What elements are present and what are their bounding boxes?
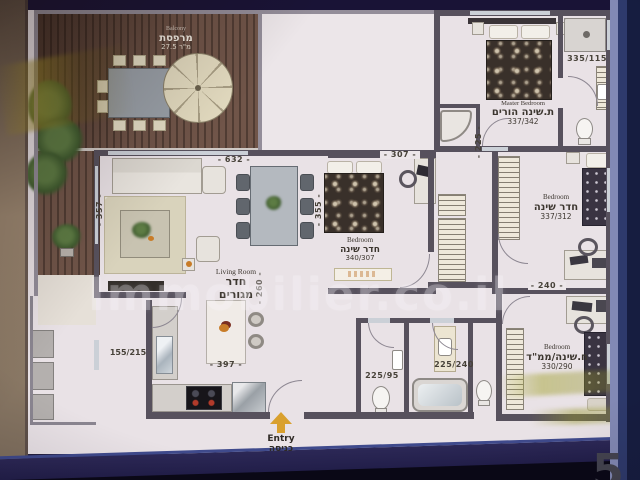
page-edge-stripe <box>618 0 627 480</box>
watermark: Immobilier.co.il <box>88 268 509 321</box>
page-number: 5 <box>592 444 624 480</box>
service-dims: 155/215 <box>106 349 150 358</box>
bedroom-mid-en: Bedroom <box>332 237 388 245</box>
dim-632: - 632 - <box>206 156 262 164</box>
ac-unit <box>30 330 54 358</box>
wall-master-bottom <box>434 146 612 152</box>
bed-pillow <box>489 25 518 39</box>
toilet-tank <box>478 400 490 406</box>
balcony-name-en: Balcony <box>140 26 212 33</box>
umbrella-pole <box>195 85 201 91</box>
sink <box>392 350 403 370</box>
outdoor-chair <box>153 120 166 131</box>
wall-ensuite-left <box>558 12 563 78</box>
desk-chair <box>399 170 417 188</box>
toilet <box>476 380 492 402</box>
window-master-top <box>470 11 550 15</box>
shower-head <box>583 31 590 38</box>
service-balcony-label: 155/215 <box>106 349 150 358</box>
armchair <box>196 236 220 262</box>
bedroom-right-dims: 337/312 <box>528 213 584 221</box>
bathtub-basin <box>418 384 462 406</box>
balcony-area: מ"ר 27.5 <box>140 44 212 52</box>
mamad-en: Bedroom <box>526 344 588 352</box>
dim-397: - 397 - <box>204 361 248 369</box>
wardrobe <box>498 156 520 240</box>
outdoor-chair <box>113 120 126 131</box>
nightstand <box>472 22 484 35</box>
bar-stool <box>248 334 264 349</box>
mamad-label: Bedroom ח.שינה/ממ"ד 330/290 <box>526 344 588 371</box>
wall-tubroom-top <box>436 104 480 108</box>
bedroom-mid-label: Bedroom חדר שינה 340/307 <box>332 237 388 263</box>
entry-en: Entry <box>252 434 310 444</box>
door-gap-master <box>482 147 508 151</box>
dining-chair <box>300 198 314 215</box>
dishwasher <box>232 382 266 414</box>
fruit-bowl <box>219 324 229 332</box>
vine-plant <box>26 152 68 196</box>
upper-terrace <box>262 14 434 150</box>
ac-unit <box>30 362 54 390</box>
wall-ensuite-left2 <box>558 108 563 152</box>
plant-pot <box>60 248 74 257</box>
dim-357: - 357 - <box>96 186 104 234</box>
entry-he: כניסה <box>252 444 310 454</box>
wardrobe <box>506 328 524 410</box>
toilet <box>372 386 390 410</box>
computer <box>572 301 593 312</box>
entry-arrow-stem <box>277 424 285 433</box>
wall-master-left <box>434 12 440 152</box>
outdoor-chair <box>133 120 146 131</box>
wall-entry-right <box>304 412 360 419</box>
page-edge-stripe <box>610 0 618 480</box>
dining-chair <box>236 174 250 191</box>
bed-pillow <box>521 25 550 39</box>
master-dims: 337/342 <box>490 118 556 126</box>
wall-bath-left <box>404 322 409 417</box>
wall-kitchen-bottom <box>146 412 270 419</box>
floor-plan-photo: Balcony מרפסת מ"ר 27.5 - 632 - Living Ro… <box>0 0 640 480</box>
toilet-tank <box>578 138 591 145</box>
bed-double <box>324 173 384 233</box>
balcony-rail-bottom <box>30 422 96 425</box>
dining-chair <box>236 198 250 215</box>
dim-225: - 225 - <box>475 121 483 163</box>
wc-dims: 225/95 <box>362 372 402 380</box>
bath-dims: 225/240 <box>432 361 476 369</box>
outdoor-chair <box>133 55 146 66</box>
dim-240: - 240 - <box>528 282 566 290</box>
dining-chair <box>236 222 250 239</box>
entry-label: Entry כניסה <box>252 434 310 454</box>
photo-top-band <box>0 0 640 10</box>
service-door-gap <box>94 340 99 370</box>
sofa <box>112 158 202 194</box>
balcony-rail-left <box>34 10 38 296</box>
mamad-dims: 330/290 <box>526 363 588 371</box>
desk-chair <box>578 238 598 256</box>
terrace-divider-wall <box>258 12 262 152</box>
kitchen-sink <box>156 336 173 374</box>
stove <box>186 386 222 410</box>
outdoor-chair <box>153 55 166 66</box>
dining-chair <box>300 222 314 239</box>
dining-chair <box>300 174 314 191</box>
master-label: Master Bedroom ת.שינה הורים 337/342 <box>490 100 556 127</box>
bedroom-mid-dims: 340/307 <box>332 255 388 263</box>
wall-wc-left <box>356 322 361 417</box>
ensuite-dims: 335/115 <box>566 55 608 63</box>
balcony-label: Balcony מרפסת מ"ר 27.5 <box>140 26 212 52</box>
dim-355: - 355 - <box>315 187 323 233</box>
ac-unit <box>30 394 54 420</box>
bed-master <box>486 40 552 100</box>
page-edge-stripe <box>627 0 640 480</box>
decor-item <box>148 236 154 241</box>
potted-plant <box>52 224 82 250</box>
toilet <box>576 118 593 140</box>
entry-arrow <box>270 412 292 424</box>
decor-item <box>186 261 192 267</box>
bedroom-right-en: Bedroom <box>528 194 584 202</box>
wall-bath-bottom <box>356 412 474 419</box>
wall-toiletroom-left <box>468 322 473 417</box>
master-en: Master Bedroom <box>490 100 556 107</box>
nightstand <box>566 152 580 164</box>
dim-307: - 307 - <box>380 151 420 159</box>
wall-bedroom-mid-right <box>428 152 434 252</box>
armchair <box>202 166 226 194</box>
centerpiece-plant <box>266 196 282 210</box>
balcony-rail-left-low <box>30 296 33 424</box>
hall-closet <box>438 194 466 216</box>
bedroom-right-label: Bedroom חדר שינה 337/312 <box>528 194 584 221</box>
